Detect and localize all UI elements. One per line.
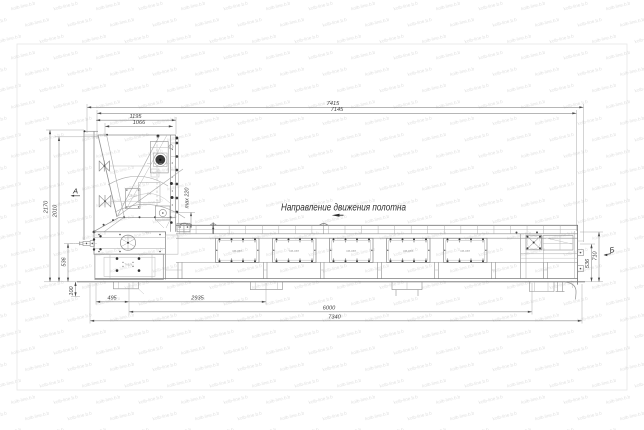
svg-text:495: 495 bbox=[107, 295, 117, 301]
svg-text:Направление движения полотна: Направление движения полотна bbox=[281, 202, 407, 213]
svg-text:max 220: max 220 bbox=[184, 188, 190, 209]
svg-text:1066: 1066 bbox=[133, 120, 146, 126]
svg-text:2170: 2170 bbox=[43, 200, 49, 214]
svg-text:СБ.087: СБ.087 bbox=[403, 249, 413, 253]
svg-text:СБ.10: СБ.10 bbox=[128, 193, 137, 197]
svg-text:6000: 6000 bbox=[323, 305, 336, 311]
svg-text:2935: 2935 bbox=[190, 295, 204, 301]
svg-text:1195: 1195 bbox=[129, 114, 142, 120]
svg-text:7145: 7145 bbox=[331, 107, 344, 113]
svg-text:СБ.087: СБ.087 bbox=[289, 249, 299, 253]
svg-text:100: 100 bbox=[69, 285, 75, 295]
svg-text:СБ.087: СБ.087 bbox=[346, 249, 356, 253]
svg-text:2010: 2010 bbox=[52, 204, 58, 218]
svg-text:А: А bbox=[72, 187, 78, 196]
svg-text:710: 710 bbox=[593, 250, 599, 260]
svg-text:536: 536 bbox=[585, 258, 591, 268]
svg-text:ОБ: ОБ bbox=[147, 192, 151, 196]
svg-text:ТАБЛ: ТАБЛ bbox=[124, 262, 131, 266]
svg-text:536: 536 bbox=[62, 256, 68, 266]
svg-text:7340: 7340 bbox=[328, 314, 341, 320]
svg-text:СБ.087: СБ.087 bbox=[232, 249, 242, 253]
svg-text:СБ.087: СБ.087 bbox=[460, 249, 470, 253]
